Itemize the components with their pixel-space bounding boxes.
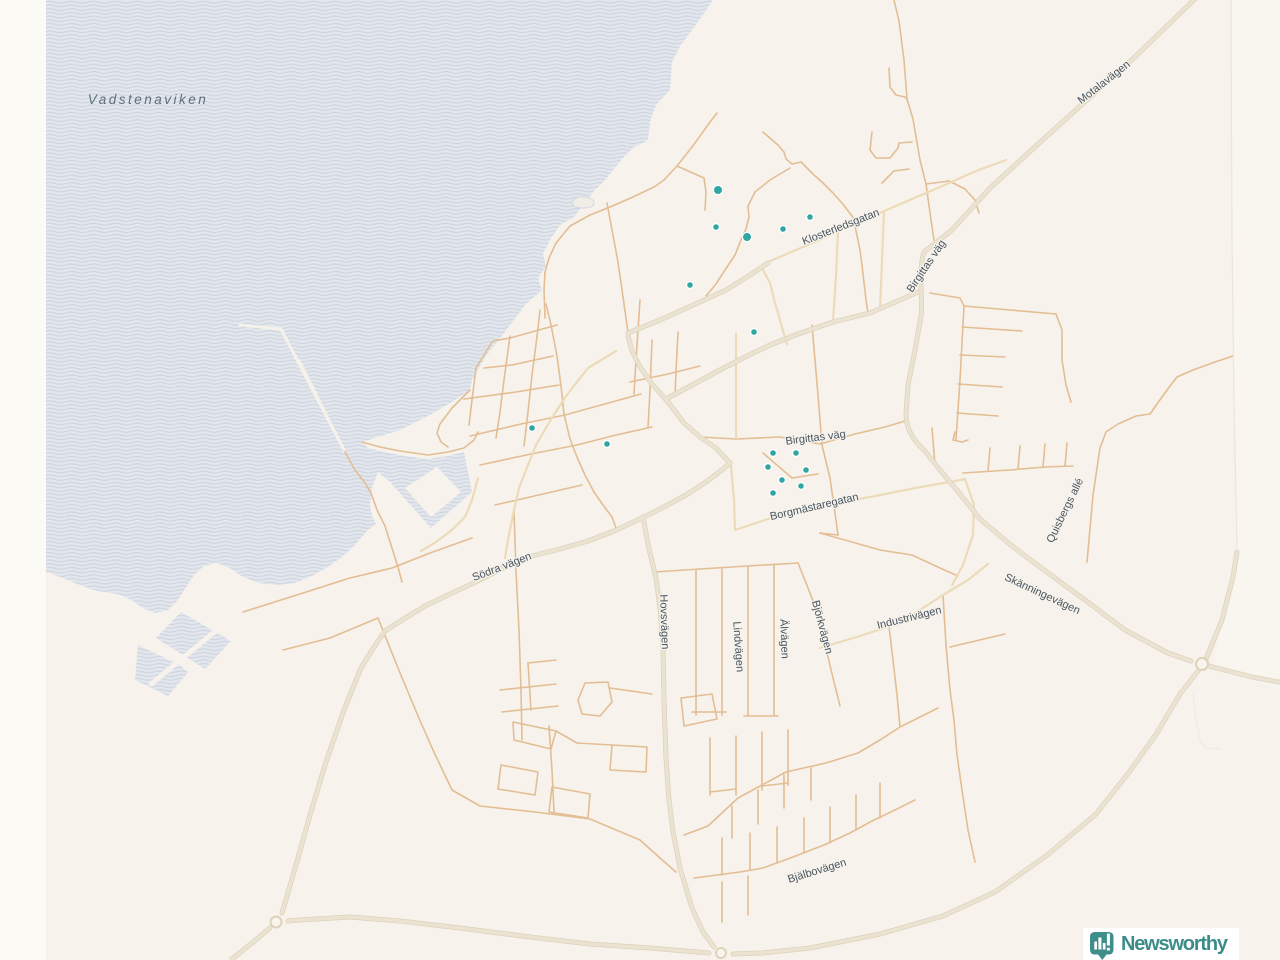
svg-text:Newsworthy: Newsworthy [1121,933,1229,955]
svg-text:Vadstenaviken: Vadstenaviken [88,92,209,107]
svg-text:Hovsvägen: Hovsvägen [657,594,671,649]
svg-text:Älvägen: Älvägen [777,619,790,659]
